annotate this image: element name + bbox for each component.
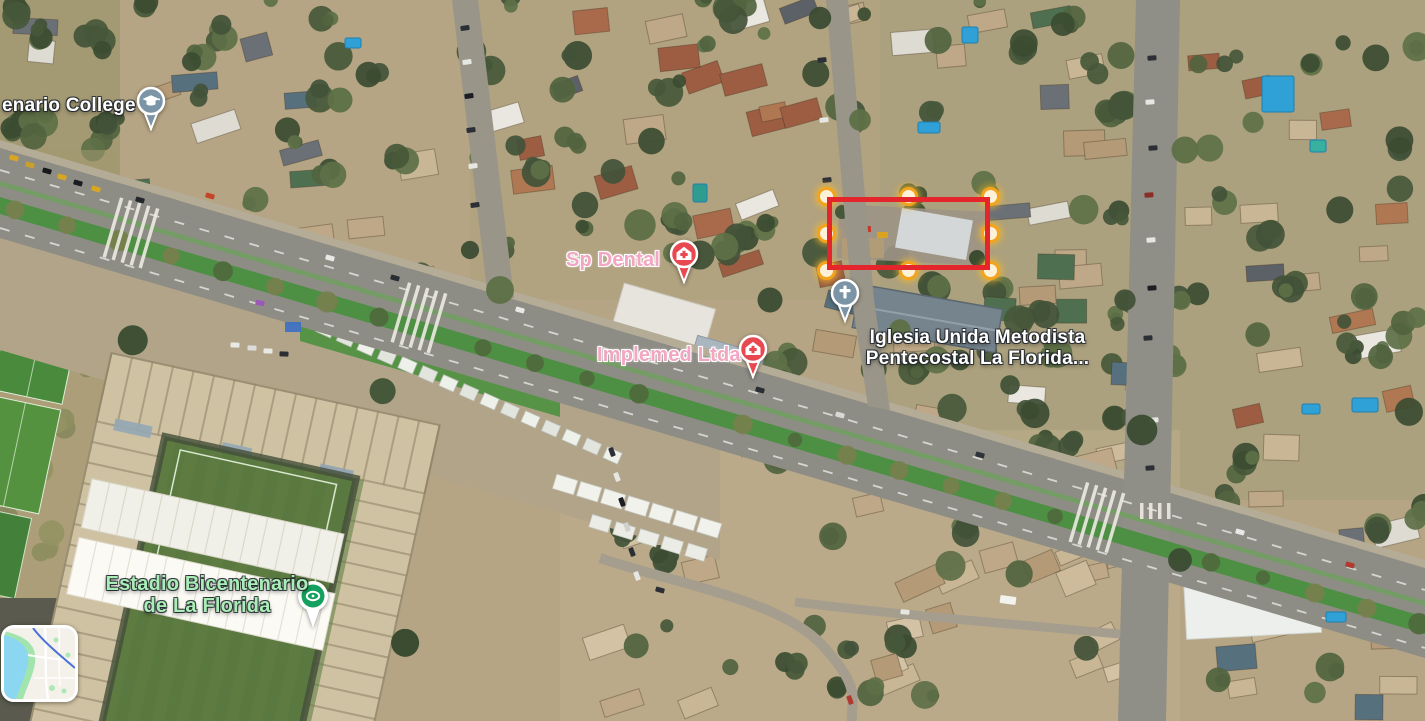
selection-border <box>827 197 990 270</box>
poi-pin-college[interactable] <box>134 85 168 136</box>
map-style-toggle[interactable] <box>1 625 78 702</box>
poi-label-iglesia-line2: Pentecostal La Florida... <box>855 348 1100 369</box>
selection-handle-bottom-middle[interactable] <box>899 261 918 280</box>
selection-handle-top-left[interactable] <box>817 187 836 206</box>
selection-handle-middle-right[interactable] <box>981 224 1000 243</box>
minimap-preview <box>4 628 75 699</box>
selection-handle-bottom-right[interactable] <box>981 261 1000 280</box>
poi-label-estadio[interactable]: Estadio Bicentenario de La Florida <box>92 573 322 617</box>
map-viewport[interactable]: enario College Sp Dental Implemed Ltda I… <box>0 0 1425 721</box>
graduation-cap-icon <box>134 85 168 131</box>
selection-handle-top-right[interactable] <box>981 187 1000 206</box>
poi-label-iglesia-line1: Iglesia Unida Metodista <box>855 327 1100 348</box>
poi-label-estadio-line1: Estadio Bicentenario <box>92 573 322 595</box>
medical-house-icon <box>667 238 701 284</box>
selection-handle-top-middle[interactable] <box>899 187 918 206</box>
medical-house-icon <box>736 333 770 379</box>
poi-label-estadio-line2: de La Florida <box>92 595 322 617</box>
poi-label-iglesia[interactable]: Iglesia Unida Metodista Pentecostal La F… <box>855 327 1100 369</box>
poi-pin-sp-dental[interactable] <box>667 238 701 289</box>
selection-rectangle[interactable] <box>832 202 985 265</box>
christian-cross-icon <box>828 277 862 323</box>
poi-label-college[interactable]: enario College <box>2 95 136 117</box>
poi-pin-implemed[interactable] <box>736 333 770 384</box>
poi-label-sp-dental[interactable]: Sp Dental <box>566 249 660 272</box>
poi-pin-iglesia[interactable] <box>828 277 862 328</box>
selection-handle-middle-left[interactable] <box>817 224 836 243</box>
poi-label-implemed[interactable]: Implemed Ltda <box>597 344 741 367</box>
